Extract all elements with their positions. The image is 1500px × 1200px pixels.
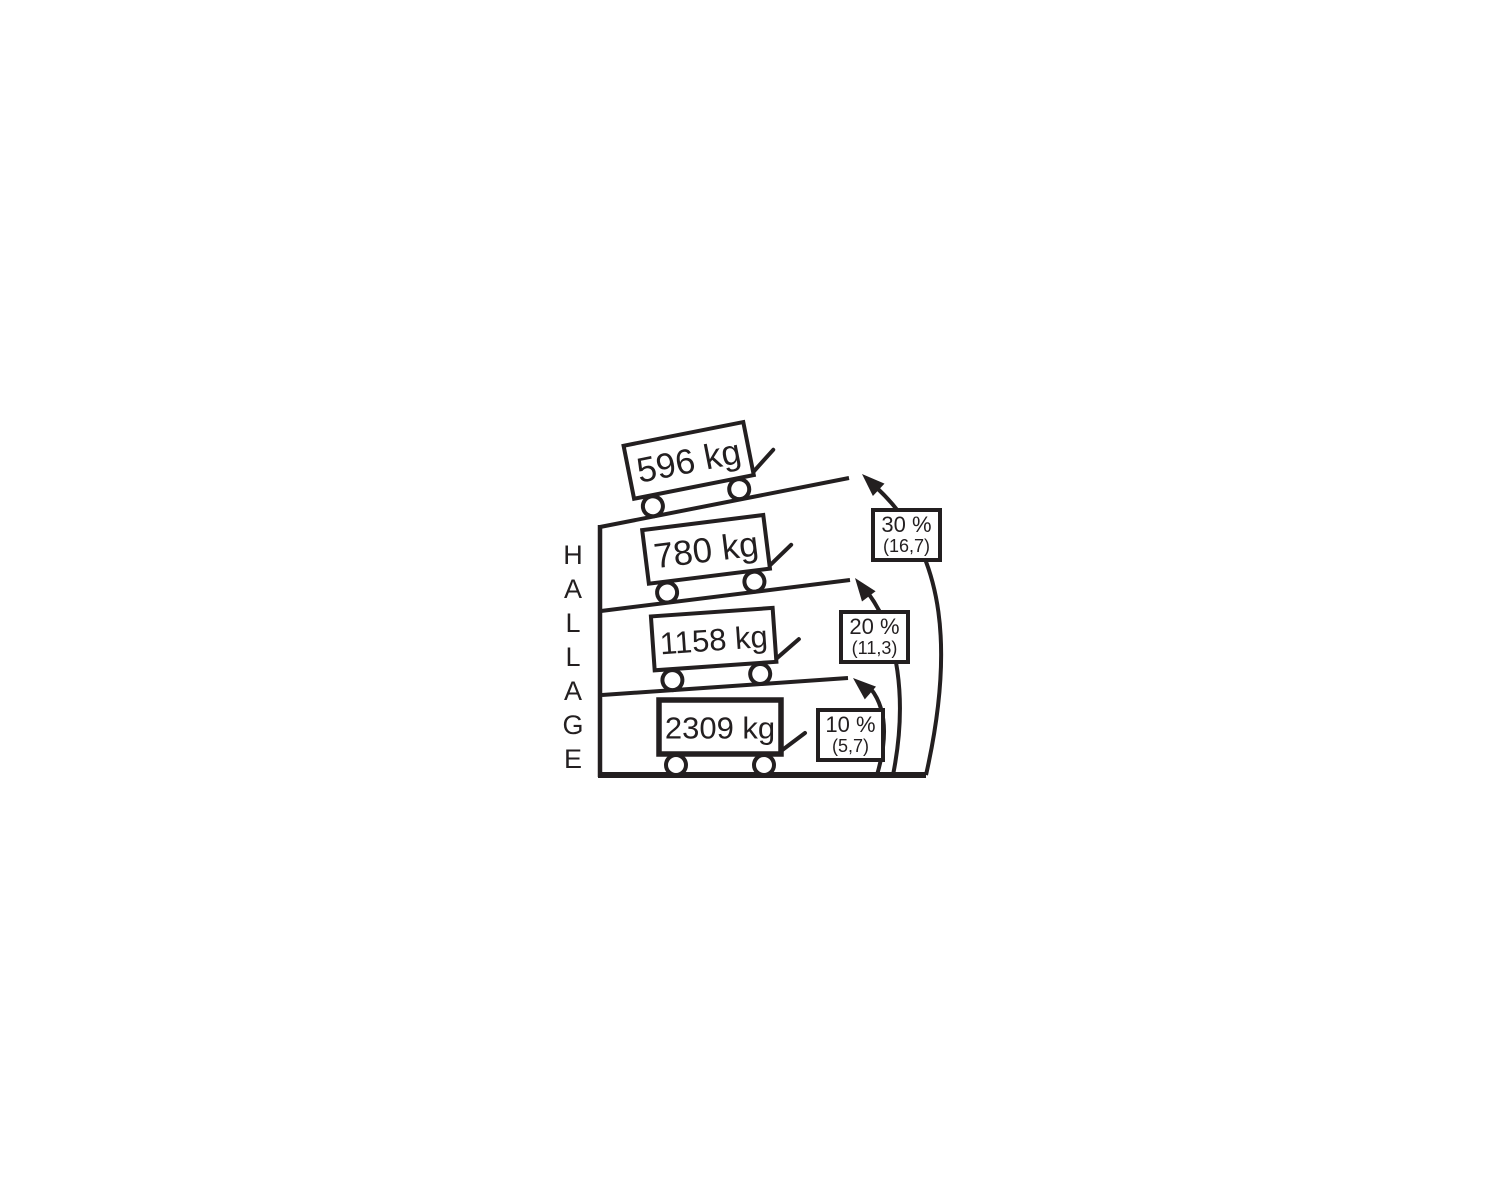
cart-weight-label: 2309 kg <box>665 711 775 746</box>
cart-wheel-left <box>666 755 686 775</box>
slope-degrees-30: (16,7) <box>883 536 930 556</box>
cart-wheel-right <box>750 663 771 684</box>
cart-wheel-right <box>743 570 765 592</box>
slope-degrees-10: (5,7) <box>832 736 869 756</box>
slope-percent-20: 20 % <box>849 614 899 639</box>
cart-on-flat-ground: 2309 kg <box>659 700 805 775</box>
slope-label-10: 10 % (5,7) <box>818 710 883 760</box>
slope-percent-10: 10 % <box>825 712 875 737</box>
cart-on-10-percent: 1158 kg <box>651 606 802 691</box>
cart-wheel-left <box>656 581 678 603</box>
cart-handle <box>767 545 793 566</box>
cart-handle <box>781 733 805 751</box>
slope-label-20: 20 % (11,3) <box>841 612 908 662</box>
slope-label-30: 30 % (16,7) <box>873 510 940 560</box>
cart-wheel-left <box>662 669 683 690</box>
arrowhead-10-percent-icon <box>853 678 876 699</box>
haulage-diagram: 30 % (16,7) 20 % (11,3) 10 % (5,7) 596 k… <box>0 0 1500 1200</box>
cart-wheel-right <box>754 755 774 775</box>
cart-on-30-percent: 596 kg <box>624 417 782 519</box>
slope-degrees-20: (11,3) <box>852 638 898 658</box>
incline-line-10-percent <box>602 678 848 695</box>
incline-line-20-percent <box>601 580 850 611</box>
slope-percent-30: 30 % <box>881 512 931 537</box>
diagram-canvas: 30 % (16,7) 20 % (11,3) 10 % (5,7) 596 k… <box>0 0 1500 1200</box>
cart-handle <box>775 639 800 659</box>
hallage-vertical-label: HALLAGE <box>559 540 586 778</box>
